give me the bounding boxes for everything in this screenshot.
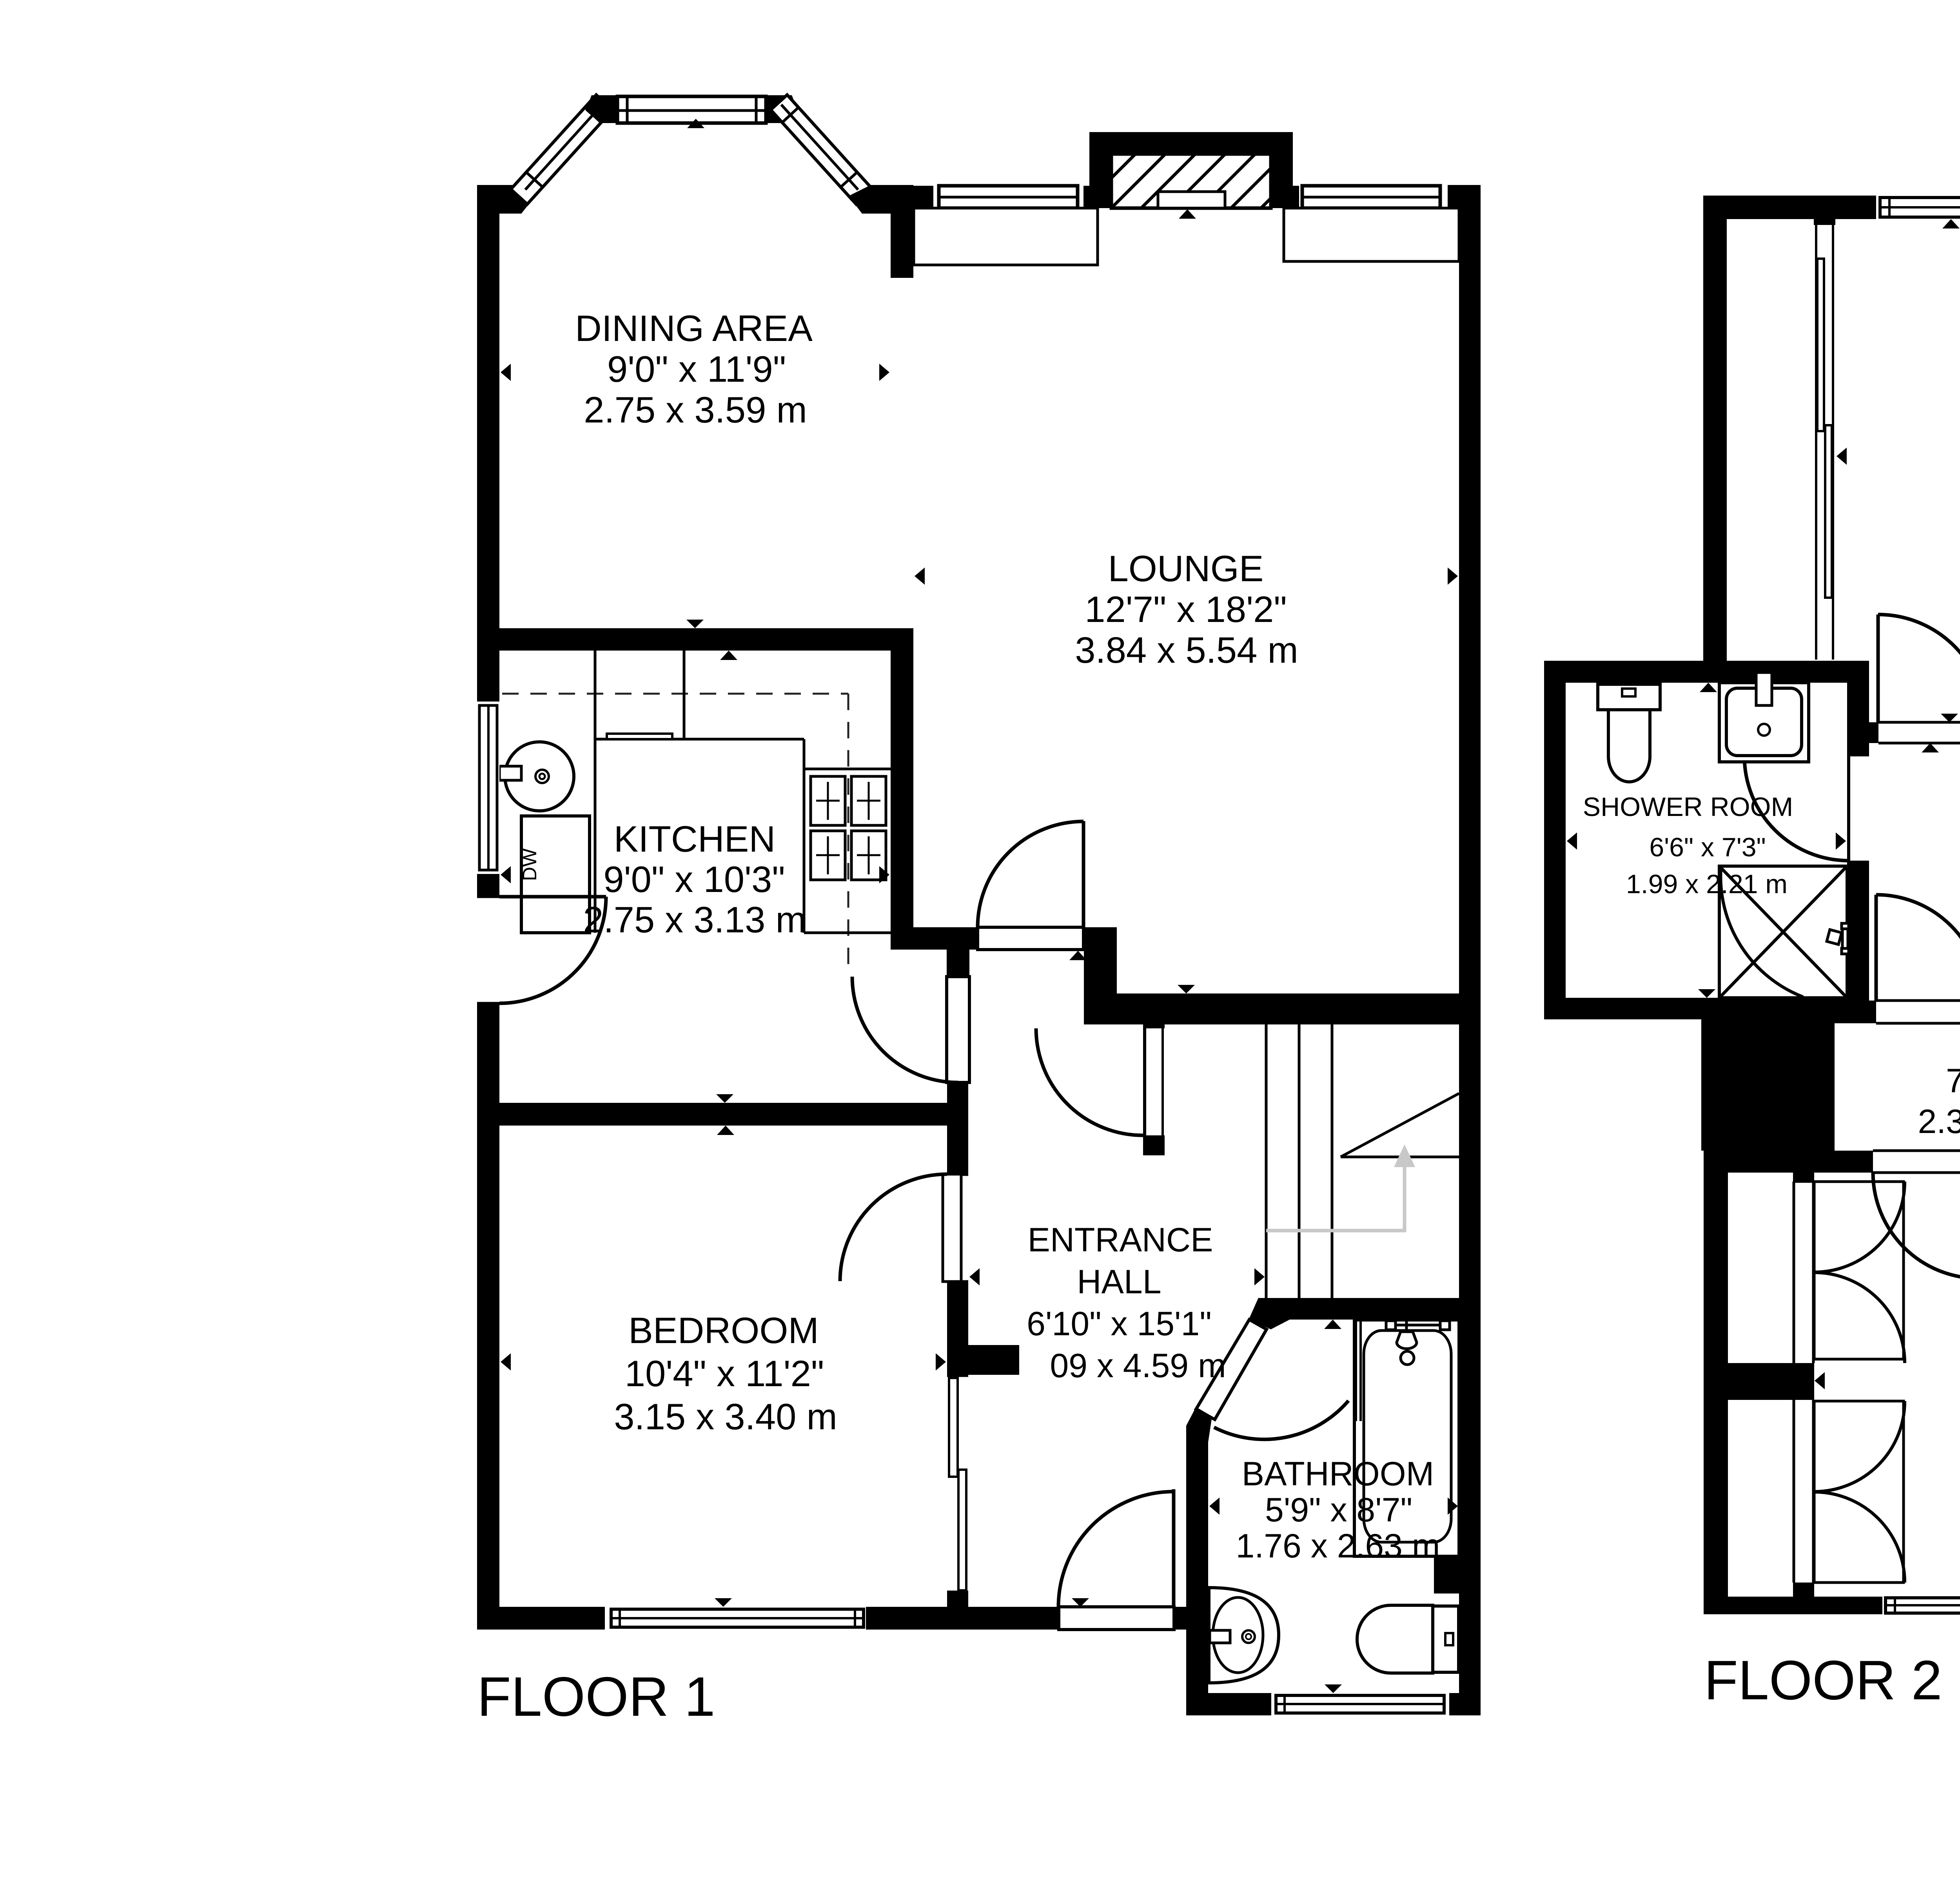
svg-text:09 x 4.59 m: 09 x 4.59 m <box>1050 1347 1226 1385</box>
svg-text:1.99 x 2.21 m: 1.99 x 2.21 m <box>1626 869 1788 899</box>
svg-text:6'6" x 7'3": 6'6" x 7'3" <box>1649 832 1766 862</box>
svg-text:1.76 x 2.63 m: 1.76 x 2.63 m <box>1236 1527 1440 1565</box>
svg-text:FLOOR 1: FLOOR 1 <box>477 1666 715 1728</box>
svg-text:LOUNGE: LOUNGE <box>1108 548 1264 589</box>
svg-text:12'7" x 18'2": 12'7" x 18'2" <box>1085 589 1287 630</box>
svg-text:SHOWER ROOM: SHOWER ROOM <box>1583 792 1793 822</box>
svg-text:HALL: HALL <box>1077 1263 1161 1301</box>
svg-text:BEDROOM: BEDROOM <box>628 1310 819 1351</box>
svg-text:KITCHEN: KITCHEN <box>614 818 776 859</box>
svg-text:3.15 x 3.40 m: 3.15 x 3.40 m <box>614 1396 837 1437</box>
svg-text:ENTRANCE: ENTRANCE <box>1027 1221 1213 1259</box>
svg-text:2.75 x 3.59 m: 2.75 x 3.59 m <box>584 389 807 430</box>
svg-text:9'0" x 11'9": 9'0" x 11'9" <box>607 348 786 390</box>
svg-text:9'0" x 10'3": 9'0" x 10'3" <box>603 859 785 900</box>
svg-text:BATHROOM: BATHROOM <box>1242 1455 1434 1493</box>
svg-text:6'10" x 15'1": 6'10" x 15'1" <box>1027 1305 1212 1343</box>
svg-text:2.75 x 3.13 m: 2.75 x 3.13 m <box>583 899 806 940</box>
svg-text:DW: DW <box>519 848 541 881</box>
svg-text:FLOOR 2: FLOOR 2 <box>1704 1649 1942 1711</box>
svg-text:5'9" x 8'7": 5'9" x 8'7" <box>1265 1491 1412 1529</box>
svg-text:2.36 x 2.86 m: 2.36 x 2.86 m <box>1918 1103 1960 1140</box>
svg-text:DINING AREA: DINING AREA <box>575 308 813 349</box>
svg-text:3.84 x 5.54 m: 3.84 x 5.54 m <box>1075 629 1298 671</box>
svg-text:7'9" x 9'5": 7'9" x 9'5" <box>1946 1062 1960 1100</box>
svg-text:10'4" x 11'2": 10'4" x 11'2" <box>625 1353 824 1394</box>
